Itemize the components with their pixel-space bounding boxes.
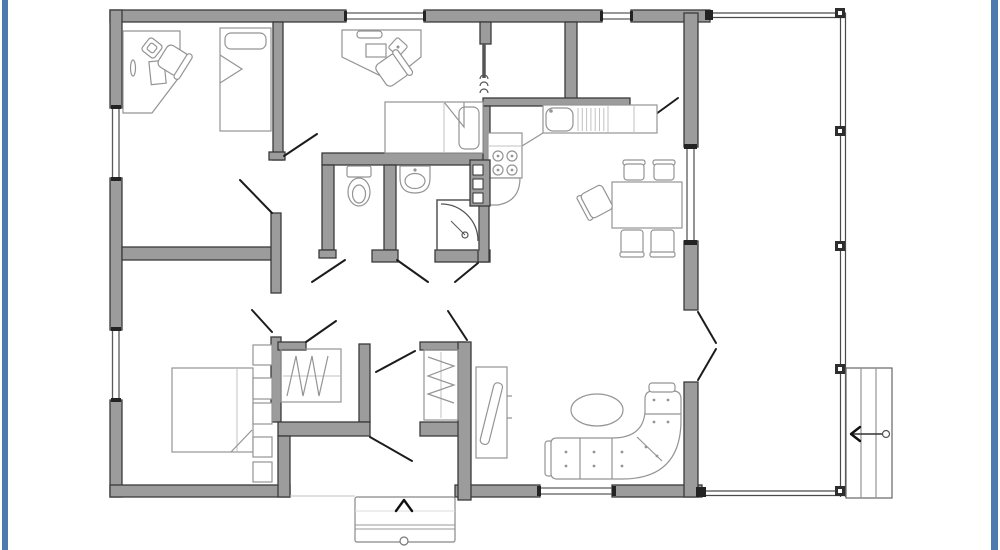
deck-french-doors — [698, 312, 716, 380]
coffee-table — [571, 394, 623, 426]
window-left-2 — [111, 327, 121, 402]
sofa-back-cushion — [649, 383, 675, 392]
pillow — [253, 403, 272, 424]
single-bed — [220, 28, 271, 131]
deck — [700, 8, 892, 498]
dining-chair — [650, 230, 675, 257]
toilet — [347, 166, 371, 206]
desk-keyboard — [366, 44, 386, 57]
bedroom-2 — [342, 30, 483, 153]
double-bed — [172, 368, 253, 452]
dining-chair — [653, 160, 675, 180]
living-area — [476, 367, 681, 479]
nightstand — [253, 462, 272, 482]
window-top-2 — [600, 11, 633, 21]
faucet — [413, 168, 416, 171]
bedroom-1-door — [240, 180, 272, 213]
appliance-column — [470, 160, 490, 206]
right-frame-stripe — [991, 0, 998, 550]
wc-door — [312, 260, 345, 282]
counter-corner-seam — [522, 133, 543, 146]
window-right — [684, 144, 697, 245]
dining-chair — [623, 160, 645, 180]
dining-area — [576, 160, 682, 257]
hall-passage-door — [376, 351, 415, 372]
bedroom-1 — [123, 28, 271, 131]
bathroom-door — [397, 260, 428, 282]
closet-1 — [281, 349, 341, 402]
washbasin — [400, 166, 430, 193]
counter-end — [488, 178, 520, 205]
nightstand — [253, 437, 272, 457]
wall-end-bracket — [696, 487, 706, 497]
entry-steps — [355, 497, 455, 545]
nightstand — [253, 345, 272, 365]
wc — [347, 166, 371, 206]
front-door — [370, 437, 412, 461]
dining-chair — [620, 230, 644, 257]
bathroom — [400, 166, 479, 250]
stove — [488, 133, 522, 178]
floor-plan — [0, 0, 1000, 550]
window-top-1 — [344, 11, 426, 21]
deck-steps — [846, 368, 892, 498]
dining-table — [612, 182, 682, 228]
corner-shower — [437, 200, 479, 250]
pillow — [253, 378, 272, 399]
single-bed — [385, 102, 483, 153]
living-area-door — [448, 311, 467, 340]
drainboard — [578, 108, 604, 131]
window-bottom — [537, 486, 616, 496]
desk-shelf — [357, 31, 382, 38]
bedroom-3-door — [252, 310, 272, 332]
dining-chair — [576, 184, 613, 221]
bedroom-2-door — [284, 134, 317, 156]
window-left-1 — [111, 105, 121, 181]
shower-room-door — [455, 263, 478, 282]
tv-stand — [476, 367, 512, 458]
faucet — [549, 109, 553, 113]
closet-1-door — [306, 321, 336, 342]
screenshot-canvas — [0, 0, 1000, 550]
left-frame-stripe — [2, 0, 8, 550]
wall-end-bracket — [705, 10, 713, 20]
bedroom-3 — [172, 345, 272, 482]
closet-2 — [424, 350, 458, 420]
